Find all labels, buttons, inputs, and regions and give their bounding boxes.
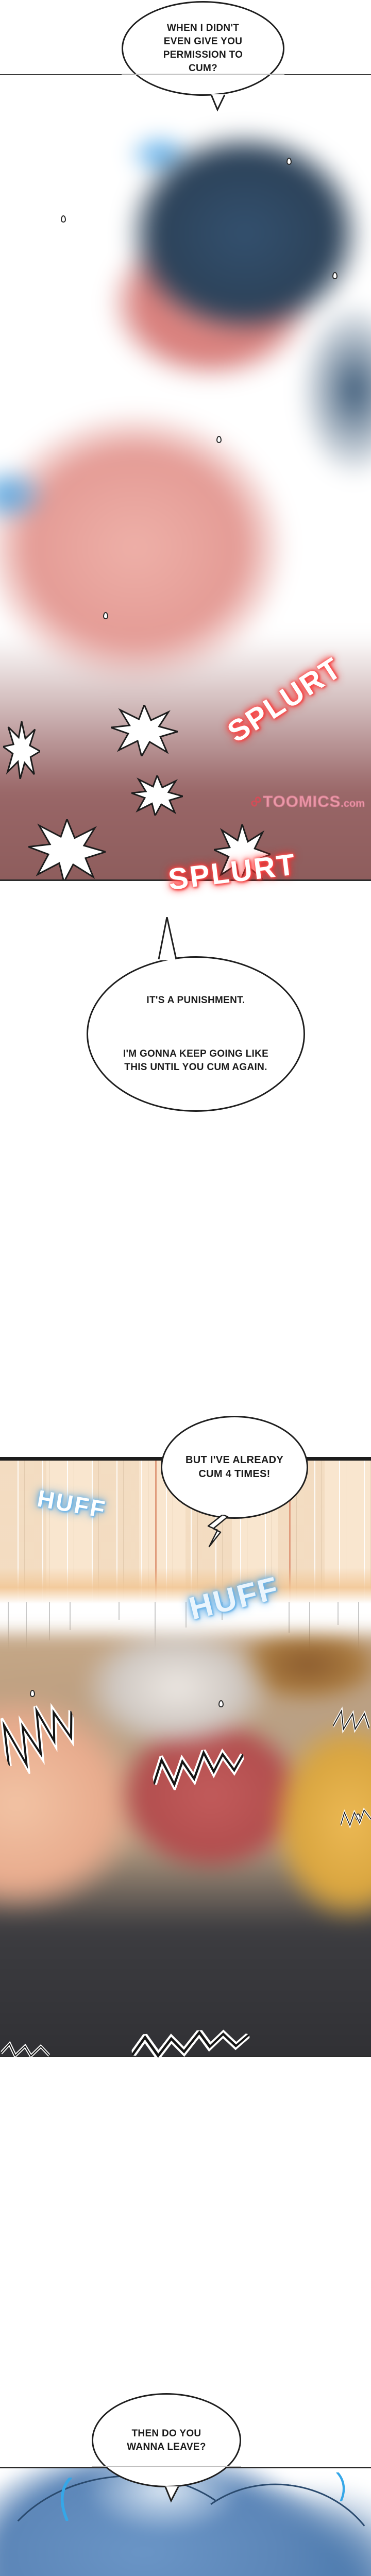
tremble-squiggle-icon	[339, 1807, 371, 1830]
sweat-drop-icon	[286, 158, 292, 165]
speech-bubble-3-text: BUT I'VE ALREADY CUM 4 TIMES!	[185, 1453, 283, 1481]
speech-bubble-2: IT'S A PUNISHMENT. I'M GONNA KEEP GOING …	[87, 956, 305, 1112]
impact-burst-icon	[3, 721, 40, 779]
sweat-drop-icon	[332, 272, 338, 279]
speech-bubble-4-tail	[163, 2486, 181, 2503]
speech-bubble-3: BUT I'VE ALREADY CUM 4 TIMES!	[161, 1416, 308, 1519]
speech-bubble-4-text: THEN DO YOU WANNA LEAVE?	[127, 2427, 206, 2454]
speech-bubble-2-text: IT'S A PUNISHMENT. I'M GONNA KEEP GOING …	[123, 994, 268, 1074]
impact-burst-icon	[131, 775, 183, 816]
comic-panel-1	[0, 74, 371, 881]
speed-line	[185, 1602, 187, 1628]
speed-line	[338, 1602, 339, 1625]
hair-strand-flick-icon	[330, 2472, 352, 2501]
speech-bubble-1: WHEN I DIDN'T EVEN GIVE YOU PERMISSION T…	[122, 1, 284, 96]
impact-burst-icon	[111, 705, 178, 756]
panel-2-artwork-placeholder	[0, 1633, 371, 2057]
panel-edge-line	[122, 74, 284, 75]
watermark: ∞ TOOMICS .com	[249, 792, 365, 811]
sweat-drop-icon	[216, 436, 222, 443]
panel-1-artwork-placeholder	[0, 74, 371, 881]
speed-line	[119, 1602, 120, 1620]
speech-bubble-1-text: WHEN I DIDN'T EVEN GIVE YOU PERMISSION T…	[163, 22, 243, 75]
panel-edge-line	[92, 2466, 241, 2467]
speed-line	[70, 1602, 71, 1630]
wall-fade	[0, 1568, 371, 1604]
sweat-drop-icon	[30, 1690, 35, 1697]
speech-bubble-2-tail	[155, 917, 179, 960]
sweat-drop-icon	[218, 1700, 224, 1707]
speech-bubble-3-tail	[205, 1515, 234, 1549]
webtoon-page: ∞ TOOMICS .com WHEN I DIDN'T EVEN GIVE Y…	[0, 0, 371, 2576]
speed-line	[289, 1602, 290, 1633]
sweat-drop-icon	[103, 612, 108, 619]
watermark-suffix-text: .com	[341, 798, 365, 810]
sweat-drop-icon	[61, 215, 66, 223]
speech-bubble-4: THEN DO YOU WANNA LEAVE?	[92, 2393, 241, 2487]
impact-burst-icon	[28, 819, 106, 881]
watermark-brand-text: TOOMICS	[263, 792, 341, 811]
hair-strand-flick-icon	[56, 2478, 76, 2521]
speech-bubble-1-tail	[208, 94, 228, 112]
